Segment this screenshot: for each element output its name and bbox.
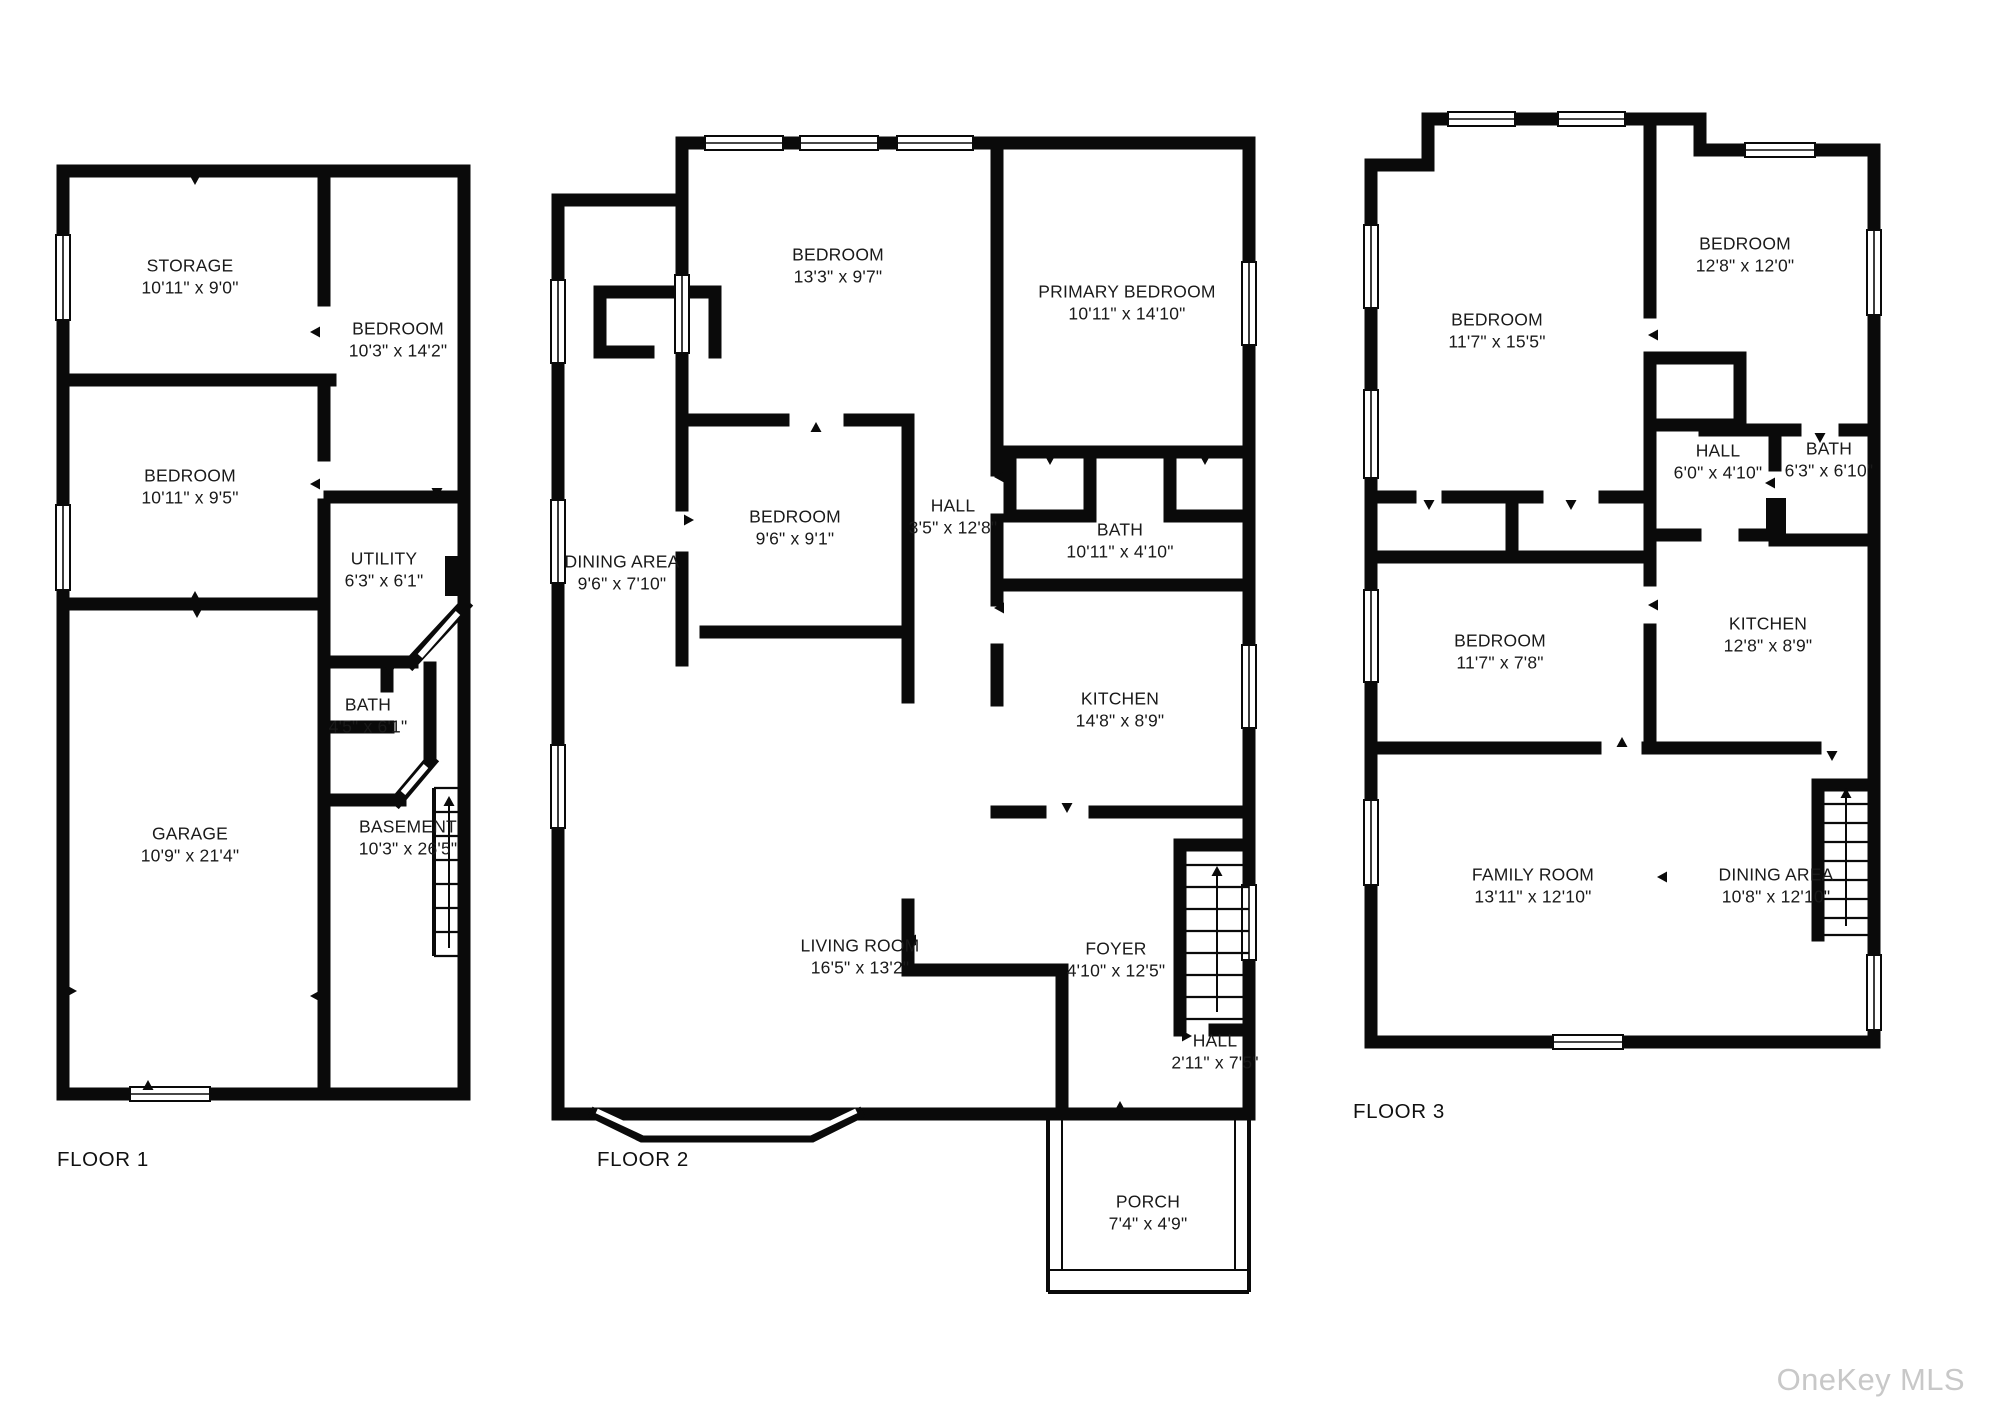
room-dims: 12'8" x 12'0": [1696, 255, 1795, 277]
room-label-floor2-hall-lower: HALL 2'11" x 7'5": [1171, 1030, 1258, 1075]
room-label-floor2-dining-area: DINING AREA 9'6" x 7'10": [564, 551, 679, 596]
room-label-floor1-bedroom-left: BEDROOM 10'11" x 9'5": [141, 465, 238, 510]
floor-3-title: FLOOR 3: [1353, 1100, 1445, 1124]
room-label-floor2-bedroom-2: BEDROOM 9'6" x 9'1": [749, 506, 841, 551]
room-label-floor2-bath: BATH 10'11" x 4'10": [1066, 519, 1173, 564]
room-name: BASEMENT: [359, 816, 458, 838]
room-dims: 4'5" x 6'1": [329, 716, 408, 738]
room-name: PRIMARY BEDROOM: [1038, 281, 1215, 303]
floor-plan-graphics: [0, 0, 1999, 1410]
room-name: STORAGE: [141, 255, 238, 277]
chimney-block: [445, 556, 464, 596]
floor-2-stairs: [1186, 865, 1249, 1019]
room-name: HALL: [909, 495, 998, 517]
room-name: DINING AREA: [564, 551, 679, 573]
room-dims: 16'5" x 13'2": [801, 957, 920, 979]
room-name: BATH: [1066, 519, 1173, 541]
room-name: FAMILY ROOM: [1472, 864, 1594, 886]
room-label-floor3-dining-area: DINING AREA 10'8" x 12'10": [1718, 864, 1833, 909]
watermark-onekey-mls: OneKey MLS: [1777, 1362, 1965, 1398]
room-name: BEDROOM: [1448, 309, 1545, 331]
room-name: BEDROOM: [792, 244, 884, 266]
room-dims: 10'3" x 26'5": [359, 838, 458, 860]
room-name: PORCH: [1109, 1191, 1188, 1213]
room-dims: 10'8" x 12'10": [1718, 886, 1833, 908]
room-label-floor3-bedroom-1: BEDROOM 11'7" x 15'5": [1448, 309, 1545, 354]
room-dims: 13'3" x 9'7": [792, 266, 884, 288]
room-dims: 3'5" x 12'8": [909, 517, 998, 539]
room-name: BEDROOM: [1454, 630, 1546, 652]
room-name: UTILITY: [345, 548, 424, 570]
room-name: BEDROOM: [349, 318, 448, 340]
room-name: KITCHEN: [1076, 688, 1165, 710]
room-name: BEDROOM: [749, 506, 841, 528]
chimney-block: [1766, 498, 1786, 534]
room-dims: 7'4" x 4'9": [1109, 1213, 1188, 1235]
floor-plan-canvas: STORAGE 10'11" x 9'0" BEDROOM 10'3" x 14…: [0, 0, 1999, 1410]
room-dims: 14'8" x 8'9": [1076, 710, 1165, 732]
room-label-floor1-basement: BASEMENT 10'3" x 26'5": [359, 816, 458, 861]
room-dims: 10'3" x 14'2": [349, 340, 448, 362]
room-dims: 11'7" x 7'8": [1454, 652, 1546, 674]
stairs-up-arrow: [444, 796, 455, 806]
floor-1-door-ticks: [67, 175, 443, 1090]
room-dims: 11'7" x 15'5": [1448, 331, 1545, 353]
floor-3-windows: [1364, 112, 1881, 1049]
room-dims: 10'11" x 14'10": [1038, 303, 1215, 325]
room-dims: 6'3" x 6'1": [345, 570, 424, 592]
room-dims: 9'6" x 9'1": [749, 528, 841, 550]
room-name: KITCHEN: [1724, 613, 1813, 635]
room-dims: 4'10" x 12'5": [1067, 960, 1166, 982]
floor-3-door-ticks: [1424, 330, 1838, 883]
room-label-floor3-hall: HALL 6'0" x 4'10": [1674, 440, 1763, 485]
room-name: BATH: [1785, 438, 1874, 460]
room-name: LIVING ROOM: [801, 935, 920, 957]
room-label-floor2-hall-upper: HALL 3'5" x 12'8": [909, 495, 998, 540]
floor-1-walls: [63, 171, 464, 1094]
room-dims: 10'9" x 21'4": [141, 845, 240, 867]
room-name: FOYER: [1067, 938, 1166, 960]
room-label-floor2-porch: PORCH 7'4" x 4'9": [1109, 1191, 1188, 1236]
room-label-floor3-family-room: FAMILY ROOM 13'11" x 12'10": [1472, 864, 1594, 909]
room-label-floor2-foyer: FOYER 4'10" x 12'5": [1067, 938, 1166, 983]
floor-1-title: FLOOR 1: [57, 1148, 149, 1172]
room-name: BEDROOM: [141, 465, 238, 487]
room-label-floor2-primary-bedroom: PRIMARY BEDROOM 10'11" x 14'10": [1038, 281, 1215, 326]
room-label-floor1-storage: STORAGE 10'11" x 9'0": [141, 255, 238, 300]
room-label-floor2-living-room: LIVING ROOM 16'5" x 13'2": [801, 935, 920, 980]
room-label-floor1-bedroom-right: BEDROOM 10'3" x 14'2": [349, 318, 448, 363]
room-dims: 2'11" x 7'5": [1171, 1052, 1258, 1074]
room-dims: 6'0" x 4'10": [1674, 462, 1763, 484]
room-dims: 9'6" x 7'10": [564, 573, 679, 595]
room-label-floor1-bath: BATH 4'5" x 6'1": [329, 694, 408, 739]
room-label-floor2-bedroom-1: BEDROOM 13'3" x 9'7": [792, 244, 884, 289]
room-name: BATH: [329, 694, 408, 716]
room-dims: 10'11" x 4'10": [1066, 541, 1173, 563]
room-name: DINING AREA: [1718, 864, 1833, 886]
room-label-floor1-utility: UTILITY 6'3" x 6'1": [345, 548, 424, 593]
room-label-floor3-kitchen: KITCHEN 12'8" x 8'9": [1724, 613, 1813, 658]
floor-2-title: FLOOR 2: [597, 1148, 689, 1172]
room-label-floor1-garage: GARAGE 10'9" x 21'4": [141, 823, 240, 868]
room-label-floor3-bath: BATH 6'3" x 6'10": [1785, 438, 1874, 483]
room-name: BEDROOM: [1696, 233, 1795, 255]
floor-1-windows: [56, 235, 210, 1101]
room-label-floor3-bedroom-2: BEDROOM 12'8" x 12'0": [1696, 233, 1795, 278]
floor-3-stairs: [1818, 788, 1874, 935]
room-label-floor2-kitchen: KITCHEN 14'8" x 8'9": [1076, 688, 1165, 733]
room-dims: 12'8" x 8'9": [1724, 635, 1813, 657]
room-dims: 10'11" x 9'0": [141, 277, 238, 299]
room-name: GARAGE: [141, 823, 240, 845]
room-dims: 6'3" x 6'10": [1785, 460, 1874, 482]
room-label-floor3-bedroom-3: BEDROOM 11'7" x 7'8": [1454, 630, 1546, 675]
room-name: HALL: [1171, 1030, 1258, 1052]
stairs-up-arrow: [1212, 866, 1223, 876]
room-name: HALL: [1674, 440, 1763, 462]
room-dims: 13'11" x 12'10": [1472, 886, 1594, 908]
room-dims: 10'11" x 9'5": [141, 487, 238, 509]
